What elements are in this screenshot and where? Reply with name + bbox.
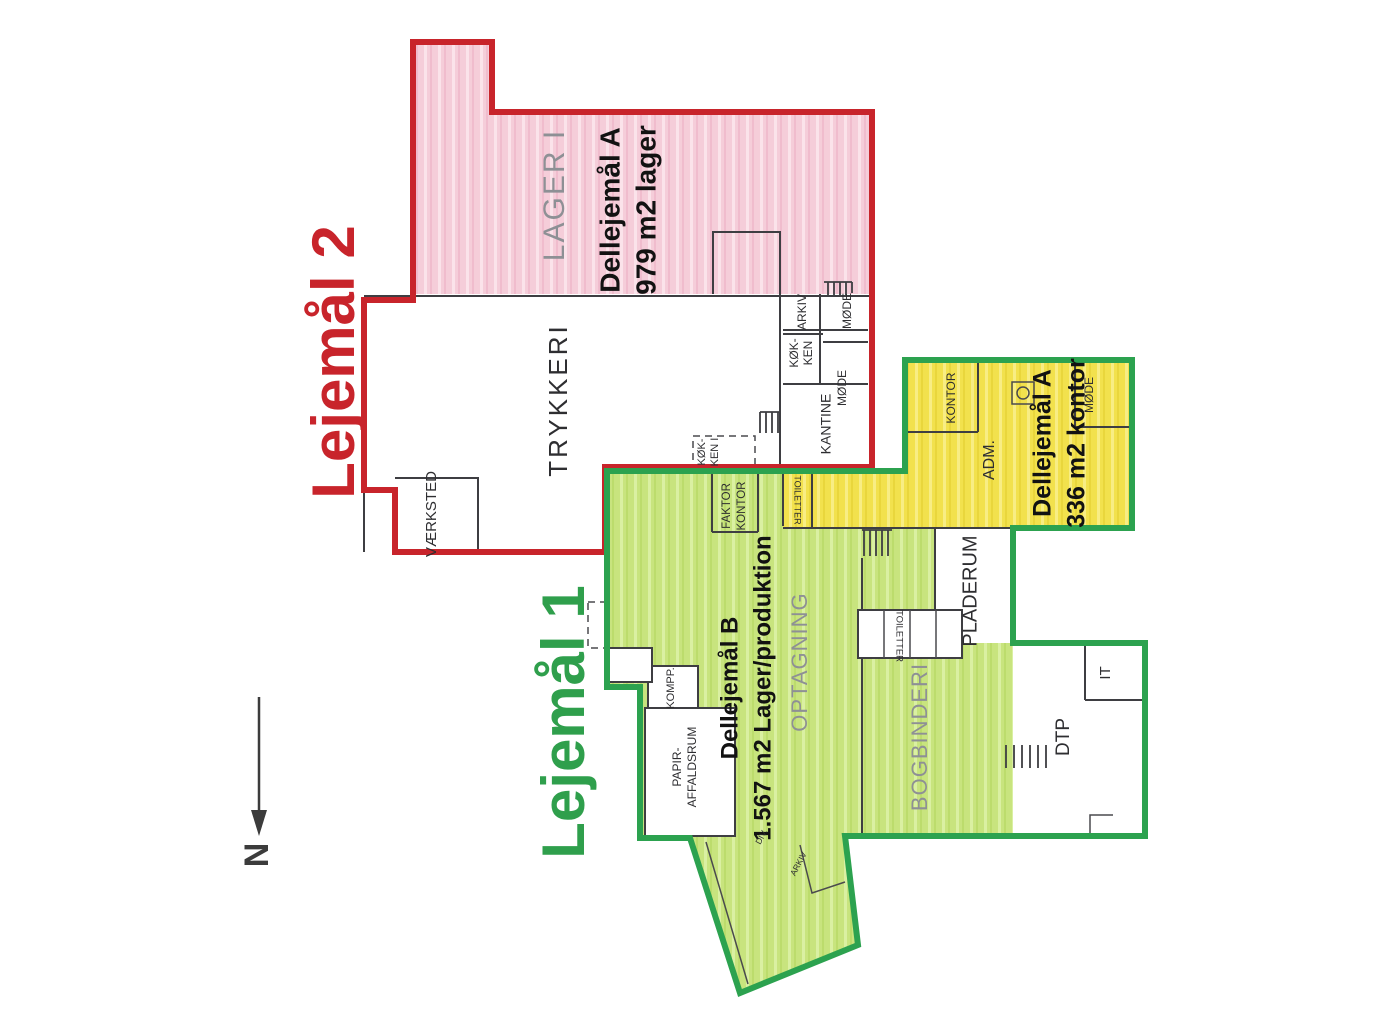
room-label-vaerksted: VÆRKSTED — [423, 471, 440, 557]
room-label-arkiv: ARKIV — [795, 294, 809, 330]
excluded-notch — [600, 689, 640, 838]
room-label-pladerum: PLADERUM — [959, 535, 981, 646]
room-label-faktor-line1: FAKTOR — [721, 483, 733, 529]
room-label-kontor: KONTOR — [944, 372, 958, 423]
room-label-optagning: OPTAGNING — [787, 592, 812, 731]
dellejemaal-a-lager-line2: 979 m2 lager — [630, 125, 661, 295]
room-label-koekken-line1: KØK- — [787, 338, 801, 367]
room-label-koekken-i-line1: KØK- — [696, 438, 708, 465]
room-label-toiletter-prod: TOILETTER — [893, 610, 904, 662]
production-area-east-strip — [935, 643, 1013, 838]
floor-plan-svg: Lejemål 2 Lejemål 1 LAGER I Dellejemål A… — [0, 0, 1400, 1010]
room-label-papir-line1: PAPIR- — [670, 747, 684, 786]
room-label-kompressor: KOMPP. — [665, 667, 677, 708]
room-label-toiletter-adm: TOILETTER — [793, 475, 803, 525]
room-label-moede-top: MØDE — [840, 293, 854, 329]
dellejemaal-a-lager-line1: Dellejemål A — [594, 127, 625, 292]
lease2-title: Lejemål 2 — [300, 225, 367, 499]
wall-it — [1013, 643, 1145, 700]
dellejemaal-a-kontor-line1: Dellejemål A — [1029, 369, 1057, 517]
room-label-dtp: DTP — [1053, 718, 1074, 756]
north-arrow-icon — [251, 697, 267, 836]
room-label-adm: ADM. — [981, 440, 998, 480]
room-label-kantine: KANTINE — [818, 394, 834, 455]
dtp-door — [1090, 815, 1113, 836]
room-cutout — [606, 648, 652, 682]
room-label-koekken-i-line2: KEN I — [709, 438, 721, 467]
lease1-title: Lejemål 1 — [530, 585, 597, 859]
room-label-papir-line2: AFFALDSRUM — [685, 727, 699, 808]
room-label-faktor-line2: KONTOR — [736, 482, 748, 531]
north-label: N — [238, 843, 276, 868]
room-label-it: IT — [1097, 666, 1114, 679]
stairs-icon-trykkeri — [760, 412, 780, 433]
room-label-koekken-line2: KEN — [801, 341, 815, 366]
room-label-moede-mid: MØDE — [835, 370, 849, 406]
room-label-trykkeri: TRYKKERI — [543, 323, 573, 477]
room-label-bogbinderi: BOGBINDERI — [907, 663, 932, 811]
floor-plan-page: Lejemål 2 Lejemål 1 LAGER I Dellejemål A… — [0, 0, 1400, 1010]
room-label-lager: LAGER I — [538, 129, 571, 261]
dellejemaal-b-line2: 1.567 m2 Lager/produktion — [749, 535, 776, 840]
dellejemaal-a-kontor-line2: 336 m2 kontor — [1063, 358, 1091, 528]
dellejemaal-b-line1: Dellejemål B — [716, 617, 743, 760]
